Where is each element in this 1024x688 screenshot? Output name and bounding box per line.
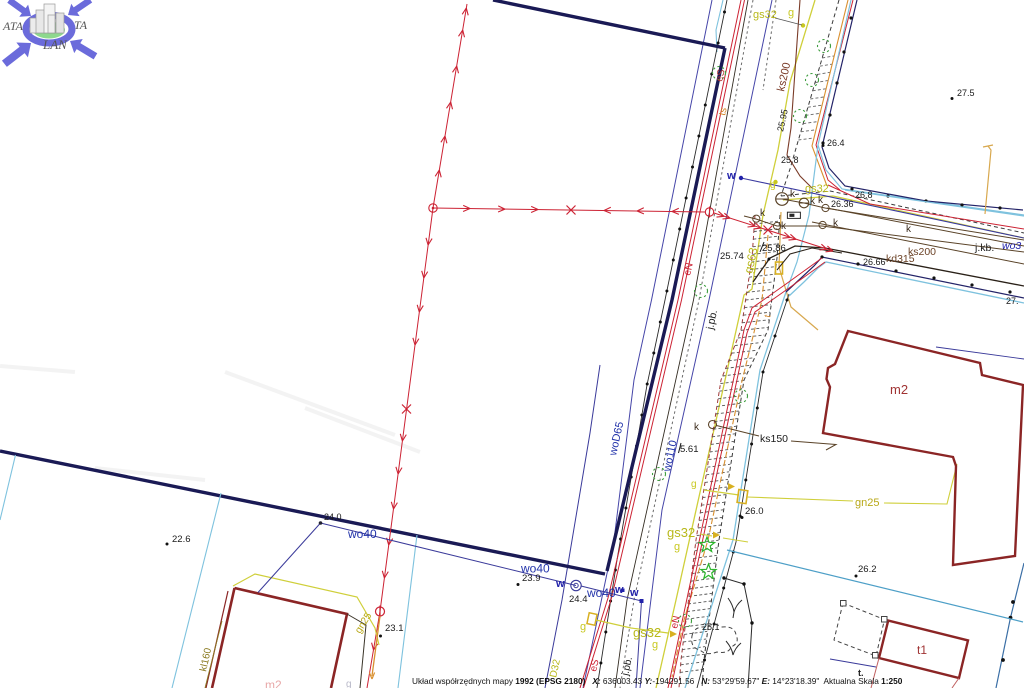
svg-text:w: w [629,587,639,599]
svg-text:g: g [674,541,680,553]
svg-text:26.4: 26.4 [827,138,845,148]
svg-text:gs32: gs32 [633,625,661,640]
svg-text:g: g [770,180,776,191]
svg-text:24.4: 24.4 [569,594,588,605]
svg-text:wo40: wo40 [347,527,377,541]
svg-text:26.8: 26.8 [855,190,873,200]
svg-text:gs32: gs32 [667,525,695,540]
svg-text:g: g [580,621,586,633]
svg-text:gn25: gn25 [855,497,879,509]
svg-text:24.0: 24.0 [324,512,342,522]
svg-text:23.9: 23.9 [522,573,541,584]
svg-text:kd315: kd315 [886,253,915,265]
svg-text:m2: m2 [890,382,908,397]
svg-text:t1: t1 [917,643,927,657]
svg-text:25.74: 25.74 [720,251,744,262]
svg-text:25.86: 25.86 [762,243,786,254]
svg-text:25.1: 25.1 [702,622,720,632]
svg-text:26.0: 26.0 [745,506,764,517]
svg-text:5.61: 5.61 [680,444,699,455]
svg-text:g: g [346,679,352,688]
svg-text:j.kb.: j.kb. [974,242,994,254]
svg-text:w: w [726,170,736,182]
svg-text:27.: 27. [1006,296,1019,306]
svg-text:wo3: wo3 [1002,240,1021,252]
svg-text:gs32: gs32 [753,9,777,21]
svg-text:22.6: 22.6 [172,534,191,545]
svg-text:26.2: 26.2 [858,564,877,575]
svg-text:w: w [614,584,624,596]
svg-text:26.66: 26.66 [863,257,886,267]
svg-text:m2: m2 [265,678,282,688]
svg-text:27.5: 27.5 [957,88,975,98]
svg-text:ATA: ATA [2,19,24,33]
svg-text:Układ współrzędnych mapy 1992: Układ współrzędnych mapy 1992 (EPSG 2180… [412,676,903,686]
svg-text:23.1: 23.1 [385,623,404,634]
svg-text:g: g [652,639,658,651]
svg-text:wo40: wo40 [586,586,616,600]
svg-text:g: g [788,7,794,19]
svg-text:g: g [691,479,697,490]
svg-text:w: w [555,578,565,590]
svg-text:gs32: gs32 [805,183,829,195]
svg-text:25.8: 25.8 [781,155,799,165]
svg-text:ks150: ks150 [760,433,788,445]
svg-text:TA: TA [74,18,88,32]
svg-text:LAN: LAN [42,37,68,52]
svg-text:26.36: 26.36 [831,199,854,209]
